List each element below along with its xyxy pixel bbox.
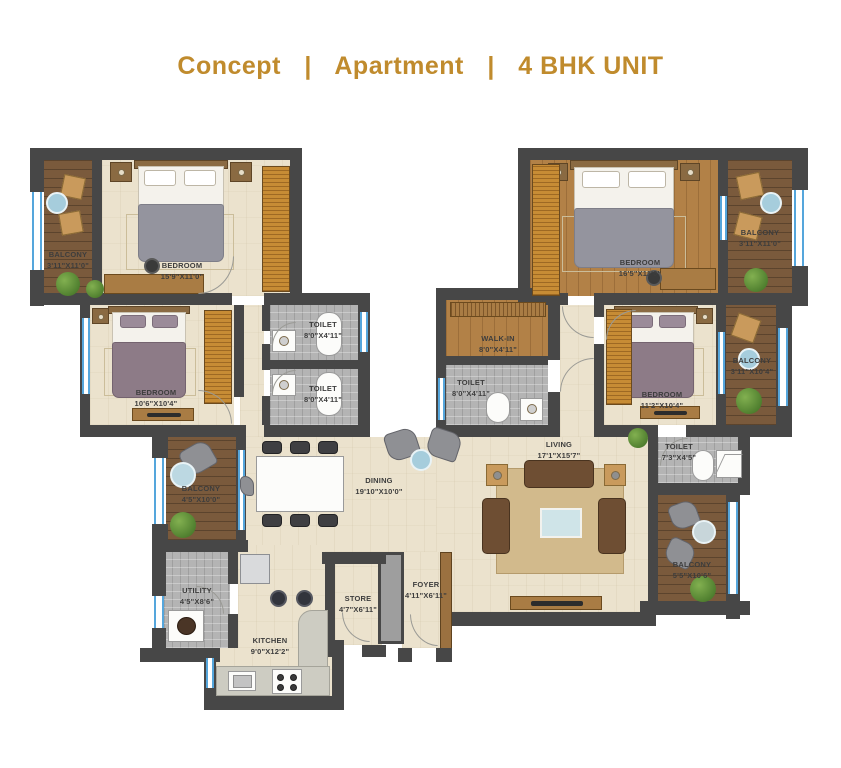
room-dims: 5'5"X10'6" xyxy=(656,571,728,582)
room-dims: 8'0"X4'11" xyxy=(288,395,358,406)
wall-segment xyxy=(322,552,386,564)
wall-segment xyxy=(228,552,238,584)
dining-chair xyxy=(262,441,282,454)
wall-wood-panel xyxy=(440,552,452,662)
room-dims: 7'3"X4'5" xyxy=(648,453,710,464)
utility-wash-basin xyxy=(168,610,204,642)
tv-console xyxy=(132,408,194,421)
wall-segment xyxy=(152,430,168,458)
wall-segment xyxy=(792,148,808,190)
stove xyxy=(272,669,302,694)
plant xyxy=(628,428,648,448)
room-name: BALCONY xyxy=(656,560,728,571)
wall-segment xyxy=(30,148,44,192)
bar-stool xyxy=(270,590,287,607)
wall-segment xyxy=(204,696,344,710)
plant xyxy=(736,388,762,414)
sofa-single xyxy=(482,498,510,554)
room-name: FOYER xyxy=(392,580,460,591)
wall-segment xyxy=(686,425,790,437)
room-dims: 17'1"X15'7" xyxy=(518,451,600,462)
balcony-table xyxy=(760,192,782,214)
plant xyxy=(170,512,196,538)
room-name: BEDROOM xyxy=(114,388,198,399)
label-kitchen: KITCHEN 9'0"X12'2" xyxy=(230,636,310,657)
title-part-unit: 4 BHK UNIT xyxy=(518,52,663,80)
wall-segment xyxy=(446,356,548,365)
label-toilet-2: TOILET 8'0"X4'11" xyxy=(288,384,358,405)
bar-stool xyxy=(296,590,313,607)
room-name: BALCONY xyxy=(33,250,103,261)
room-dims: 3'11"X10'4" xyxy=(716,367,788,378)
page-title: Concept | Apartment | 4 BHK UNIT xyxy=(0,52,841,81)
wardrobe xyxy=(262,166,290,292)
wall-segment xyxy=(262,360,358,369)
label-toilet-3: TOILET 8'0"X4'11" xyxy=(438,378,504,399)
balcony-chair xyxy=(58,210,83,235)
pillow xyxy=(184,170,216,186)
pillow xyxy=(152,315,178,328)
room-name: BALCONY xyxy=(166,484,236,495)
nightstand xyxy=(680,163,700,181)
room-dims: 4'11"X6'11" xyxy=(392,591,460,602)
room-name: STORE xyxy=(324,594,392,605)
nightstand xyxy=(230,162,252,182)
wall-segment xyxy=(234,305,244,397)
label-balcony-top-left: BALCONY 3'11"X11'0" xyxy=(33,250,103,271)
dining-chair xyxy=(240,476,254,496)
room-name: KITCHEN xyxy=(230,636,310,647)
wall-segment xyxy=(92,160,102,296)
room-dims: 8'0"X4'11" xyxy=(288,331,358,342)
room-dims: 8'0"X4'11" xyxy=(438,389,504,400)
plant xyxy=(56,272,80,296)
side-table xyxy=(604,464,626,486)
balcony-table xyxy=(692,520,716,544)
dining-chair xyxy=(318,514,338,527)
window xyxy=(728,502,738,594)
wall-segment xyxy=(594,305,604,317)
room-dims: 4'7"X6'11" xyxy=(324,605,392,616)
sofa-three-seater xyxy=(524,460,594,488)
room-name: BALCONY xyxy=(724,228,796,239)
title-part-apartment: Apartment xyxy=(334,52,464,80)
room-name: BEDROOM xyxy=(620,390,704,401)
wardrobe xyxy=(532,164,560,296)
balcony-table xyxy=(46,192,68,214)
label-toilet-1: TOILET 8'0"X4'11" xyxy=(288,320,358,341)
bed-blanket xyxy=(138,204,224,262)
room-name: BEDROOM xyxy=(598,258,682,269)
shower xyxy=(716,450,742,478)
wall-segment xyxy=(264,293,370,305)
floor-plan: Concept | Apartment | 4 BHK UNIT xyxy=(0,0,841,768)
label-balcony-top-right: BALCONY 3'11"X11'0" xyxy=(724,228,796,249)
label-utility: UTILITY 4'5"X8'6" xyxy=(160,586,234,607)
room-name: DINING xyxy=(338,476,420,487)
wall-segment xyxy=(290,148,302,305)
room-name: BEDROOM xyxy=(140,261,224,272)
wall-segment xyxy=(436,648,452,662)
label-balcony-mid-left: BALCONY 4'5"X10'0" xyxy=(166,484,236,505)
label-bedroom-4: BEDROOM 11'2"X10'4" xyxy=(620,390,704,411)
wall-segment xyxy=(262,396,270,425)
wall-segment xyxy=(264,425,370,437)
room-dims: 4'5"X10'0" xyxy=(166,495,236,506)
pillow xyxy=(582,171,620,188)
window xyxy=(360,312,368,352)
pillow xyxy=(659,315,686,328)
room-dims: 9'0"X12'2" xyxy=(230,647,310,658)
title-part-concept: Concept xyxy=(177,52,281,80)
label-bedroom-1: BEDROOM 15'9"X11'0" xyxy=(140,261,224,282)
dining-chair xyxy=(262,514,282,527)
balcony-chair xyxy=(736,172,764,200)
label-toilet-4: TOILET 7'3"X4'5" xyxy=(648,442,710,463)
room-name: UTILITY xyxy=(160,586,234,597)
nightstand xyxy=(110,162,132,182)
wall-segment xyxy=(640,601,750,615)
dining-chair xyxy=(290,441,310,454)
pillow xyxy=(120,315,146,328)
wall-segment xyxy=(594,344,604,437)
round-side-table xyxy=(410,449,432,471)
plant xyxy=(86,280,104,298)
dining-chair xyxy=(290,514,310,527)
pillow xyxy=(628,171,666,188)
label-bedroom-2: BEDROOM 10'6"X10'4" xyxy=(114,388,198,409)
wall-segment xyxy=(152,540,248,552)
pillow xyxy=(144,170,176,186)
label-dining: DINING 19'10"X10'0" xyxy=(338,476,420,497)
room-name: WALK-IN xyxy=(460,334,536,345)
wall-segment xyxy=(398,648,412,662)
label-bedroom-master: BEDROOM 16'5"X11'0" xyxy=(598,258,682,279)
room-name: TOILET xyxy=(288,320,358,331)
wall-segment xyxy=(594,293,808,305)
room-dims: 3'11"X11'0" xyxy=(724,239,796,250)
label-living: LIVING 17'1"X15'7" xyxy=(518,440,600,461)
wall-segment xyxy=(80,293,232,305)
coffee-table xyxy=(540,508,582,538)
label-foyer: FOYER 4'11"X6'11" xyxy=(392,580,460,601)
room-name: TOILET xyxy=(438,378,504,389)
kitchen-sink xyxy=(228,671,256,691)
dining-chair xyxy=(318,441,338,454)
window xyxy=(154,458,164,524)
title-separator: | xyxy=(487,52,495,80)
room-dims: 10'6"X10'4" xyxy=(114,399,198,410)
wall-segment xyxy=(518,148,808,160)
label-balcony-bottom-right: BALCONY 5'5"X10'6" xyxy=(656,560,728,581)
nightstand xyxy=(92,308,109,324)
label-store: STORE 4'7"X6'11" xyxy=(324,594,392,615)
tv-console xyxy=(510,596,602,610)
room-name: TOILET xyxy=(288,384,358,395)
room-dims: 4'5"X8'6" xyxy=(160,597,234,608)
room-name: LIVING xyxy=(518,440,600,451)
window xyxy=(206,658,214,688)
window xyxy=(82,318,90,394)
washbasin xyxy=(520,398,543,421)
nightstand xyxy=(696,308,713,324)
room-dims: 15'9"X11'0" xyxy=(140,272,224,283)
title-separator: | xyxy=(304,52,312,80)
sofa-single xyxy=(598,498,626,554)
label-balcony-mid-right: BALCONY 3'11"X10'4" xyxy=(716,356,788,377)
label-walk-in: WALK-IN 8'0"X4'11" xyxy=(460,334,536,355)
plant xyxy=(744,268,768,292)
wall-segment xyxy=(450,612,656,626)
room-dims: 16'5"X11'0" xyxy=(598,269,682,280)
room-name: TOILET xyxy=(648,442,710,453)
side-table xyxy=(486,464,508,486)
room-dims: 19'10"X10'0" xyxy=(338,487,420,498)
refrigerator xyxy=(240,554,270,584)
room-dims: 3'11"X11'0" xyxy=(33,261,103,272)
room-dims: 8'0"X4'11" xyxy=(460,345,536,356)
wall-segment xyxy=(262,305,270,331)
room-name: BALCONY xyxy=(716,356,788,367)
dining-table xyxy=(256,456,344,512)
wall-segment xyxy=(362,645,386,657)
wall-segment xyxy=(518,148,530,305)
walk-in-closet-shelf xyxy=(450,302,546,317)
wardrobe xyxy=(204,310,232,404)
room-dims: 11'2"X10'4" xyxy=(620,401,704,412)
wall-segment xyxy=(30,148,302,160)
